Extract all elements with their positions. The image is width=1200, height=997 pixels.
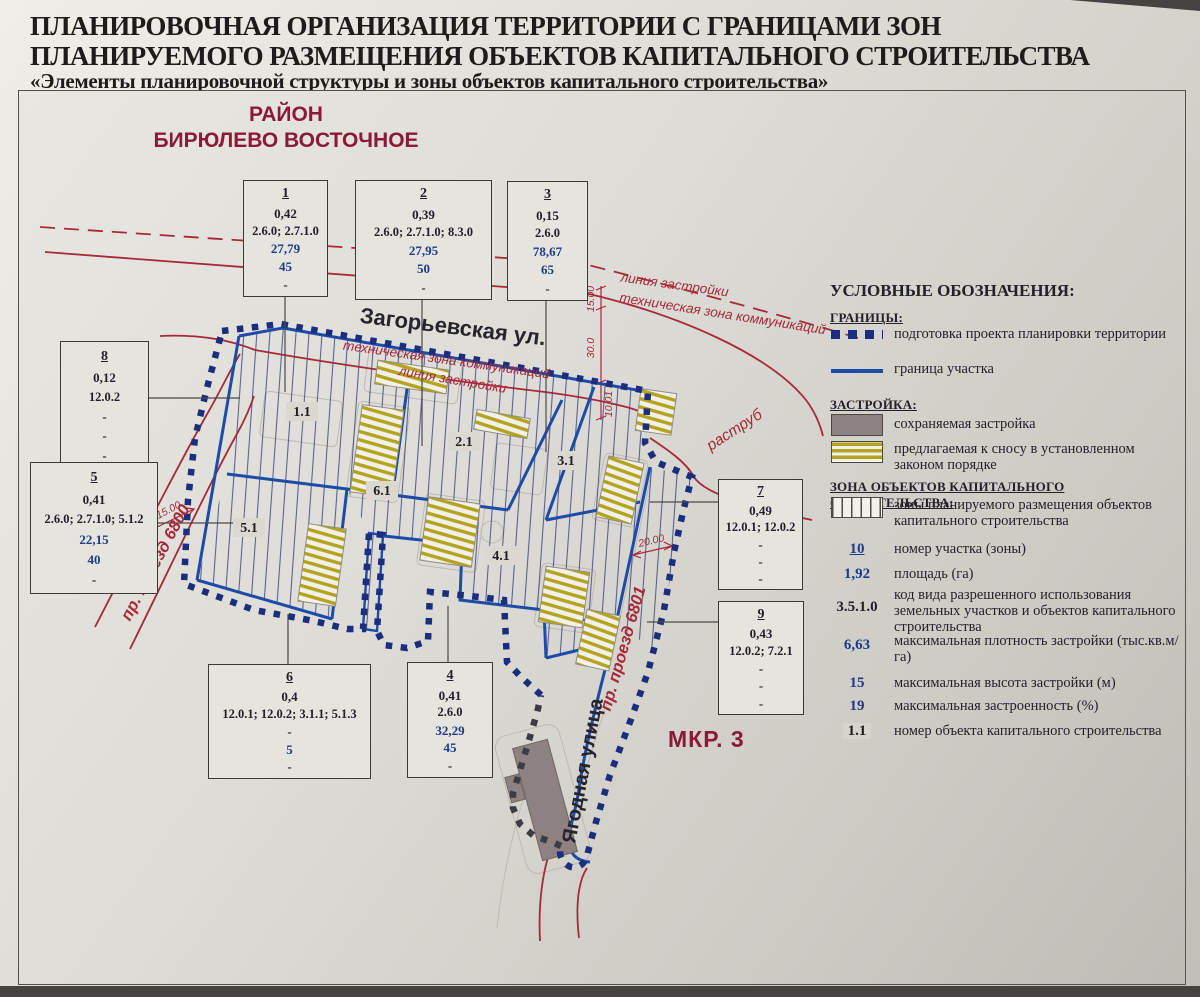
zone-label-1-1: 1.1 — [286, 402, 318, 421]
legend-item-label: зоны планируемого размещения объектов ка… — [894, 497, 1184, 529]
legend-heading-development: ЗАСТРОЙКА: — [830, 397, 917, 413]
parcel-codes: 2.6.0 — [535, 227, 560, 240]
planned-zone-swatch-icon — [831, 497, 883, 518]
legend-item-planned-zones: зоны планируемого размещения объектов ка… — [828, 497, 1184, 529]
legend-item-project-boundary: подготовка проекта планировки территории — [828, 326, 1184, 344]
parcel-height: 45 — [444, 741, 457, 754]
parcel-codes: 2.6.0; 2.7.1.0 — [252, 225, 319, 238]
parcel-height: 40 — [88, 553, 101, 566]
max-coverage-sample: 19 — [828, 698, 886, 715]
parcel-area: 0,39 — [412, 208, 435, 221]
microdistrict-label: МКР. 3 — [668, 726, 745, 753]
parcel-density: - — [287, 725, 291, 738]
street-yagodnaya: Ягодная улица — [558, 696, 608, 845]
parcel-area: 0,41 — [83, 493, 106, 506]
svg-text:1.1: 1.1 — [293, 405, 311, 420]
svg-text:4.1: 4.1 — [492, 549, 510, 564]
parcel-height: 65 — [541, 263, 554, 276]
legend-item-preserved: сохраняемая застройка — [828, 414, 1184, 441]
parcel-footnote: - — [758, 572, 762, 585]
parcel-number: 5 — [91, 470, 98, 486]
parcel-footnote: - — [545, 282, 549, 295]
parcel-codes: 12.0.1; 12.0.2; 3.1.1; 5.1.3 — [222, 708, 356, 721]
parcel-number: 4 — [447, 668, 454, 684]
legend-item-label: сохраняемая застройка — [894, 416, 1036, 432]
parcel-area: 0,12 — [93, 371, 116, 384]
parcel-footnote: - — [759, 697, 763, 710]
parcel-box-9: 9 0,43 12.0.2; 7.2.1 - - - — [718, 601, 804, 715]
area-sample: 1,92 — [828, 566, 886, 583]
parcel-footnote: - — [102, 449, 106, 462]
parcel-density: 27,95 — [409, 244, 438, 257]
legend-item-label: площадь (га) — [894, 566, 974, 582]
legend-item-max-coverage: 19 максимальная застроенность (%) — [828, 698, 1184, 715]
legend-item-parcel-boundary: граница участка — [828, 361, 1184, 378]
parcel-area: 0,4 — [281, 690, 297, 703]
legend-item-label: номер участка (зоны) — [894, 541, 1026, 557]
parcel-number: 8 — [101, 349, 108, 365]
parcel-codes: 12.0.2 — [89, 391, 120, 404]
parcel-number: 1 — [282, 186, 289, 202]
parcel-height: 5 — [286, 743, 293, 756]
parcel-box-4: 4 0,41 2.6.0 32,29 45 - — [407, 662, 493, 778]
parcel-area: 0,41 — [439, 689, 462, 702]
legend-item-label: максимальная плотность застройки (тыс.кв… — [894, 633, 1184, 665]
parcel-number: 2 — [420, 186, 427, 202]
parcel-height: 50 — [417, 262, 430, 275]
legend-item-label: предлагаемая к сносу в установленном зак… — [894, 441, 1184, 473]
svg-text:6.1: 6.1 — [373, 484, 391, 499]
legend-item-label: граница участка — [894, 361, 994, 377]
parcel-number: 3 — [544, 187, 551, 203]
legend-item-label: максимальная высота застройки (м) — [894, 675, 1116, 691]
density-sample: 6,63 — [828, 637, 886, 654]
parcel-height: - — [758, 555, 762, 568]
parcel-footnote: - — [283, 278, 287, 291]
parcel-area: 0,49 — [749, 504, 772, 517]
parcel-codes: 12.0.2; 7.2.1 — [729, 645, 793, 658]
zone-label-6-1: 6.1 — [366, 481, 398, 500]
parcel-footnote: - — [92, 573, 96, 586]
legend-title: УСЛОВНЫЕ ОБОЗНАЧЕНИЯ: — [830, 281, 1075, 301]
parcel-footnote: - — [448, 759, 452, 772]
road-6801-east-tail — [577, 868, 587, 938]
legend-item-label: номер объекта капитального строительства — [894, 723, 1162, 739]
parcel-box-7: 7 0,49 12.0.1; 12.0.2 - - - — [718, 479, 803, 590]
legend-item-object-number: 1.1 номер объекта капитального строитель… — [828, 723, 1184, 740]
svg-text:5.1: 5.1 — [240, 521, 258, 536]
project-boundary-swatch-icon — [831, 330, 883, 339]
parcel-number: 9 — [758, 607, 765, 623]
parcel-density: - — [102, 410, 106, 423]
parcel-density: 78,67 — [533, 245, 562, 258]
parcel-box-3: 3 0,15 2.6.0 78,67 65 - — [507, 181, 588, 301]
rastrub-label: раструб — [703, 405, 767, 455]
parcel-height: - — [102, 429, 106, 442]
parcel-density: 27,79 — [271, 242, 300, 255]
parcel-area: 0,15 — [536, 209, 559, 222]
dim-10-01: 10.01 — [603, 391, 615, 417]
parcel-density: 32,29 — [435, 724, 464, 737]
parcel-area: 0,43 — [750, 627, 773, 640]
parcel-codes: 2.6.0 — [438, 706, 463, 719]
legend-item-label: код вида разрешенного использования земе… — [894, 587, 1184, 636]
legend-item-density: 6,63 максимальная плотность застройки (т… — [828, 633, 1184, 665]
parcel-footnote: - — [287, 760, 291, 773]
parcel-area: 0,42 — [274, 207, 297, 220]
parcel-height: - — [759, 679, 763, 692]
parcel-number: 6 — [286, 670, 293, 686]
parcel-box-1: 1 0,42 2.6.0; 2.7.1.0 27,79 45 - — [243, 180, 328, 297]
zone-label-2-1: 2.1 — [448, 432, 480, 451]
preserved-building-swatch-icon — [831, 414, 883, 436]
demolish-building-swatch-icon — [831, 441, 883, 463]
max-height-sample: 15 — [828, 675, 886, 692]
svg-text:2.1: 2.1 — [455, 435, 473, 450]
parcel-codes: 12.0.1; 12.0.2 — [726, 521, 796, 534]
legend-item-area: 1,92 площадь (га) — [828, 566, 1184, 583]
parcel-density: 22,15 — [79, 533, 108, 546]
parcel-box-5: 5 0,41 2.6.0; 2.7.1.0; 5.1.2 22,15 40 - — [30, 462, 158, 594]
parcel-footnote: - — [421, 281, 425, 294]
svg-text:3.1: 3.1 — [557, 454, 575, 469]
legend-item-use-code: 3.5.1.0 код вида разрешенного использова… — [828, 587, 1184, 636]
zone-label-5-1: 5.1 — [233, 518, 265, 537]
parcel-height: 45 — [279, 260, 292, 273]
parcel-box-2: 2 0,39 2.6.0; 2.7.1.0; 8.3.0 27,95 50 - — [355, 180, 492, 300]
parcel-codes: 2.6.0; 2.7.1.0; 5.1.2 — [45, 513, 144, 526]
dim-30: 30.0 — [585, 338, 597, 359]
object-number-sample: 1.1 — [843, 723, 872, 739]
parcel-box-8: 8 0,12 12.0.2 - - - — [60, 341, 149, 469]
legend-heading-borders: ГРАНИЦЫ: — [830, 310, 903, 326]
legend-item-demolish: предлагаемая к сносу в установленном зак… — [828, 441, 1184, 473]
legend-item-zone-number: 10 номер участка (зоны) — [828, 541, 1184, 558]
zone-label-3-1: 3.1 — [550, 451, 582, 470]
parcel-boundary-swatch-icon — [831, 369, 883, 374]
zone-label-4-1: 4.1 — [485, 546, 517, 565]
parcel-codes: 2.6.0; 2.7.1.0; 8.3.0 — [374, 226, 473, 239]
use-code-sample: 3.5.1.0 — [828, 599, 886, 616]
zone-number-sample: 10 — [828, 541, 886, 558]
parcel-density: - — [758, 538, 762, 551]
legend-item-label: максимальная застроенность (%) — [894, 698, 1098, 714]
parcel-density: - — [759, 662, 763, 675]
parcel-box-6: 6 0,4 12.0.1; 12.0.2; 3.1.1; 5.1.3 - 5 - — [208, 664, 371, 779]
parcel-number: 7 — [757, 484, 764, 500]
legend-item-label: подготовка проекта планировки территории — [894, 326, 1166, 342]
legend-item-max-height: 15 максимальная высота застройки (м) — [828, 675, 1184, 692]
